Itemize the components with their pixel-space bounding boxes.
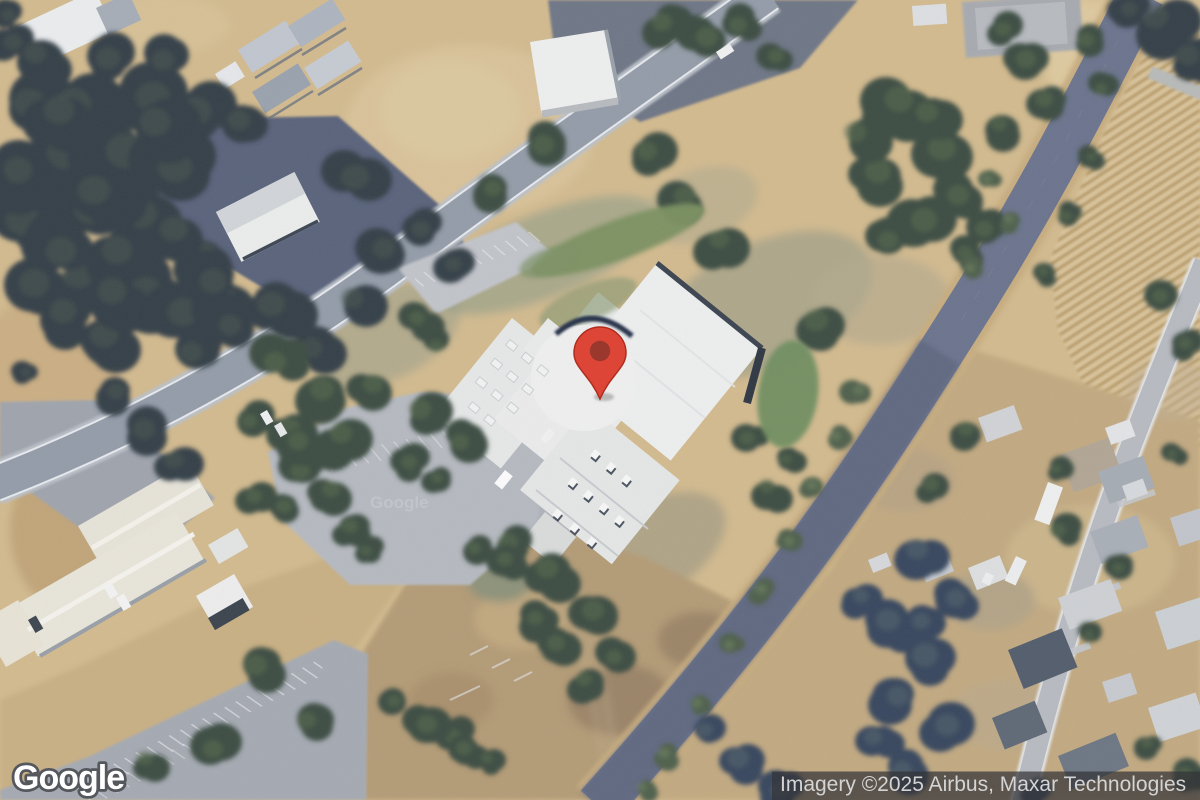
svg-text:Google: Google <box>370 493 429 512</box>
svg-text:Google: Google <box>13 759 124 797</box>
svg-text:Imagery ©2025 Airbus, Maxar Te: Imagery ©2025 Airbus, Maxar Technologies <box>780 773 1186 796</box>
